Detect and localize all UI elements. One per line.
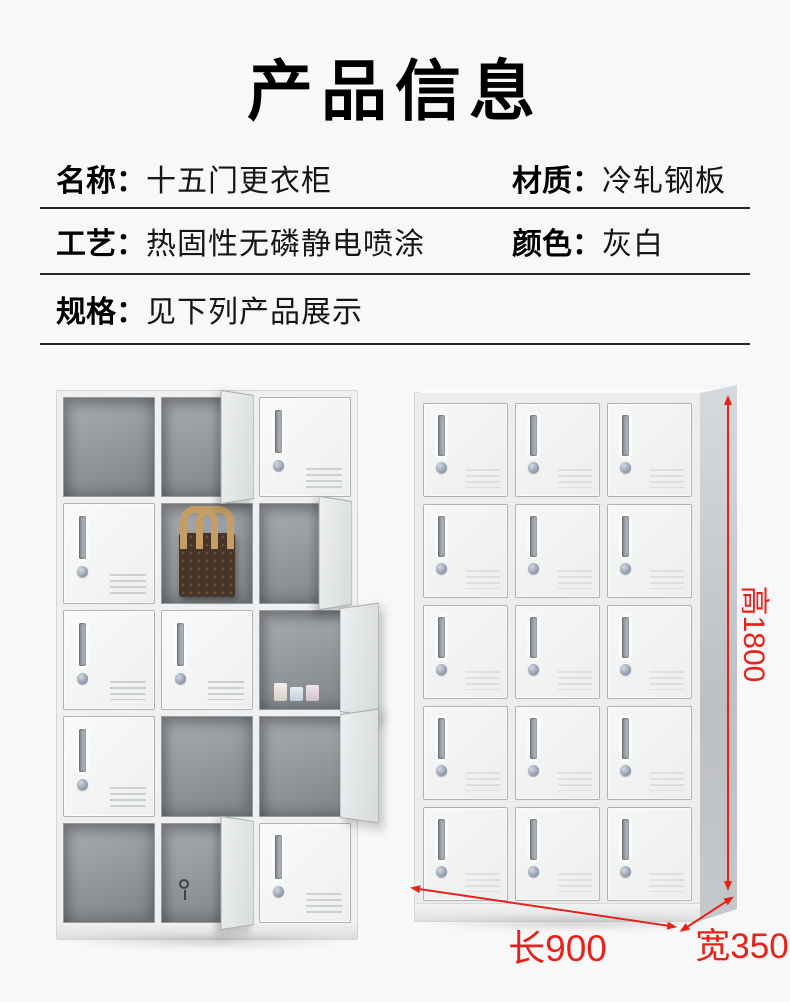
vent-grille-icon (558, 469, 591, 487)
locker-door-open-door (259, 503, 351, 603)
door-lock-icon (436, 765, 447, 776)
door-handle-icon (622, 718, 629, 758)
spec-craft: 工艺：热固性无磷静电喷涂 (56, 219, 425, 263)
spec-size-value: 见下列产品展示 (146, 296, 363, 329)
locker-cavity (63, 823, 155, 923)
vent-grille-icon (650, 570, 683, 588)
stored-items (274, 683, 319, 701)
spec-row-3: 规格：见下列产品展示 (40, 275, 750, 343)
door-handle-icon (530, 415, 537, 455)
door-lock-icon (528, 664, 539, 675)
right-locker-image (414, 392, 701, 922)
spec-material: 材质：冷轧钢板 (512, 156, 726, 200)
door-lock-icon (273, 886, 284, 897)
door-handle-icon (79, 516, 86, 559)
locker-door-open-door (161, 397, 253, 497)
page-title: 产品信息 (0, 38, 790, 134)
door-handle-icon (438, 819, 445, 859)
door-handle-icon (622, 617, 629, 657)
vent-grille-icon (558, 873, 591, 891)
vent-grille-icon (110, 681, 146, 701)
locker-door-open-bag (161, 503, 253, 603)
vent-grille-icon (466, 772, 499, 790)
locker-door-closed (515, 807, 600, 901)
spec-name-label: 名称： (56, 165, 146, 198)
vent-grille-icon (306, 468, 342, 488)
vent-grille-icon (466, 671, 499, 689)
left-locker-doors (63, 397, 351, 923)
vent-grille-icon (558, 570, 591, 588)
door-handle-icon (438, 617, 445, 657)
door-handle-icon (622, 819, 629, 859)
locker-door-open-door-out (259, 716, 351, 816)
locker-cavity (259, 716, 351, 816)
locker-door-closed (423, 706, 508, 800)
locker-base (57, 925, 357, 939)
locker-cavity (161, 716, 253, 816)
handbag (179, 533, 235, 597)
spec-row-1: 名称：十五门更衣柜 材质：冷轧钢板 (40, 148, 750, 207)
door-handle-icon (622, 415, 629, 455)
spec-name: 名称：十五门更衣柜 (56, 156, 332, 200)
vent-grille-icon (650, 671, 683, 689)
vent-grille-icon (208, 681, 244, 701)
open-door-panel (221, 390, 255, 505)
locker-cavity (63, 397, 155, 497)
vent-grille-icon (558, 671, 591, 689)
locker-door-open-door-keys (161, 823, 253, 923)
door-lock-icon (436, 866, 447, 877)
locker-door-closed (423, 605, 508, 699)
door-lock-icon (436, 462, 447, 473)
spec-row-2: 工艺：热固性无磷静电喷涂 颜色：灰白 (40, 209, 750, 273)
locker-door-open-interior (63, 823, 155, 923)
spec-material-value: 冷轧钢板 (602, 165, 726, 198)
door-lock-icon (77, 779, 88, 790)
vent-grille-icon (110, 787, 146, 807)
locker-door-closed (423, 807, 508, 901)
door-handle-icon (530, 516, 537, 556)
open-door-panel (221, 815, 255, 930)
door-lock-icon (175, 673, 186, 684)
locker-door-closed (607, 706, 692, 800)
locker-door-closed (259, 823, 351, 923)
product-info-page: 产品信息 名称：十五门更衣柜 材质：冷轧钢板 工艺：热固性无磷静电喷涂 颜色：灰… (0, 0, 790, 1002)
locker-door-closed (63, 503, 155, 603)
vent-grille-icon (466, 469, 499, 487)
locker-door-closed (423, 504, 508, 598)
locker-door-open-items-out (259, 610, 351, 710)
door-lock-icon (620, 866, 631, 877)
door-handle-icon (79, 623, 86, 666)
door-handle-icon (530, 718, 537, 758)
door-lock-icon (528, 765, 539, 776)
locker-door-closed (515, 403, 600, 497)
open-door-panel (340, 709, 379, 824)
door-lock-icon (528, 462, 539, 473)
spec-section: 名称：十五门更衣柜 材质：冷轧钢板 工艺：热固性无磷静电喷涂 颜色：灰白 规格：… (40, 148, 750, 345)
locker-door-closed (515, 605, 600, 699)
door-handle-icon (275, 410, 282, 453)
door-lock-icon (620, 462, 631, 473)
locker-door-closed (259, 397, 351, 497)
right-locker-doors (423, 403, 692, 901)
locker-top-face (417, 385, 734, 393)
door-lock-icon (436, 563, 447, 574)
spec-craft-label: 工艺： (56, 228, 146, 261)
spec-name-value: 十五门更衣柜 (146, 165, 332, 198)
spec-size: 规格：见下列产品展示 (56, 287, 363, 331)
door-handle-icon (79, 729, 86, 772)
door-handle-icon (622, 516, 629, 556)
length-dimension-label: 长900 (470, 918, 645, 972)
spec-color: 颜色：灰白 (512, 219, 664, 263)
door-lock-icon (528, 866, 539, 877)
door-lock-icon (620, 765, 631, 776)
vent-grille-icon (306, 893, 342, 913)
vent-grille-icon (558, 772, 591, 790)
height-dimension-arrow (727, 404, 729, 882)
divider (40, 343, 750, 345)
door-handle-icon (530, 819, 537, 859)
door-lock-icon (436, 664, 447, 675)
spec-size-label: 规格： (56, 296, 146, 329)
locker-door-closed (515, 504, 600, 598)
door-handle-icon (530, 617, 537, 657)
vent-grille-icon (110, 574, 146, 594)
vent-grille-icon (650, 469, 683, 487)
door-lock-icon (528, 563, 539, 574)
locker-door-closed (63, 610, 155, 710)
door-lock-icon (77, 566, 88, 577)
spec-material-label: 材质： (512, 165, 602, 198)
locker-door-closed (607, 807, 692, 901)
height-dimension-label: 高1800 (735, 549, 779, 719)
locker-side-panel (700, 385, 737, 921)
spec-color-label: 颜色： (512, 228, 602, 261)
left-locker-image (56, 390, 358, 940)
vent-grille-icon (466, 873, 499, 891)
locker-door-closed (607, 605, 692, 699)
locker-door-closed (607, 504, 692, 598)
door-lock-icon (620, 664, 631, 675)
door-handle-icon (438, 516, 445, 556)
locker-door-open-interior (63, 397, 155, 497)
vent-grille-icon (466, 570, 499, 588)
open-door-panel (340, 602, 379, 717)
locker-door-closed (423, 403, 508, 497)
width-dimension-label: 宽350 (692, 918, 790, 969)
door-handle-icon (438, 718, 445, 758)
spec-craft-value: 热固性无磷静电喷涂 (146, 228, 425, 261)
vent-grille-icon (650, 873, 683, 891)
locker-door-closed (63, 716, 155, 816)
door-lock-icon (77, 673, 88, 684)
spec-color-value: 灰白 (602, 228, 664, 261)
door-lock-icon (273, 460, 284, 471)
locker-door-closed (161, 610, 253, 710)
door-handle-icon (275, 835, 282, 878)
door-handle-icon (177, 623, 184, 666)
vent-grille-icon (650, 772, 683, 790)
door-lock-icon (620, 563, 631, 574)
door-handle-icon (438, 415, 445, 455)
open-door-panel (319, 496, 353, 611)
locker-door-closed (515, 706, 600, 800)
locker-door-open-interior (161, 716, 253, 816)
locker-door-closed (607, 403, 692, 497)
